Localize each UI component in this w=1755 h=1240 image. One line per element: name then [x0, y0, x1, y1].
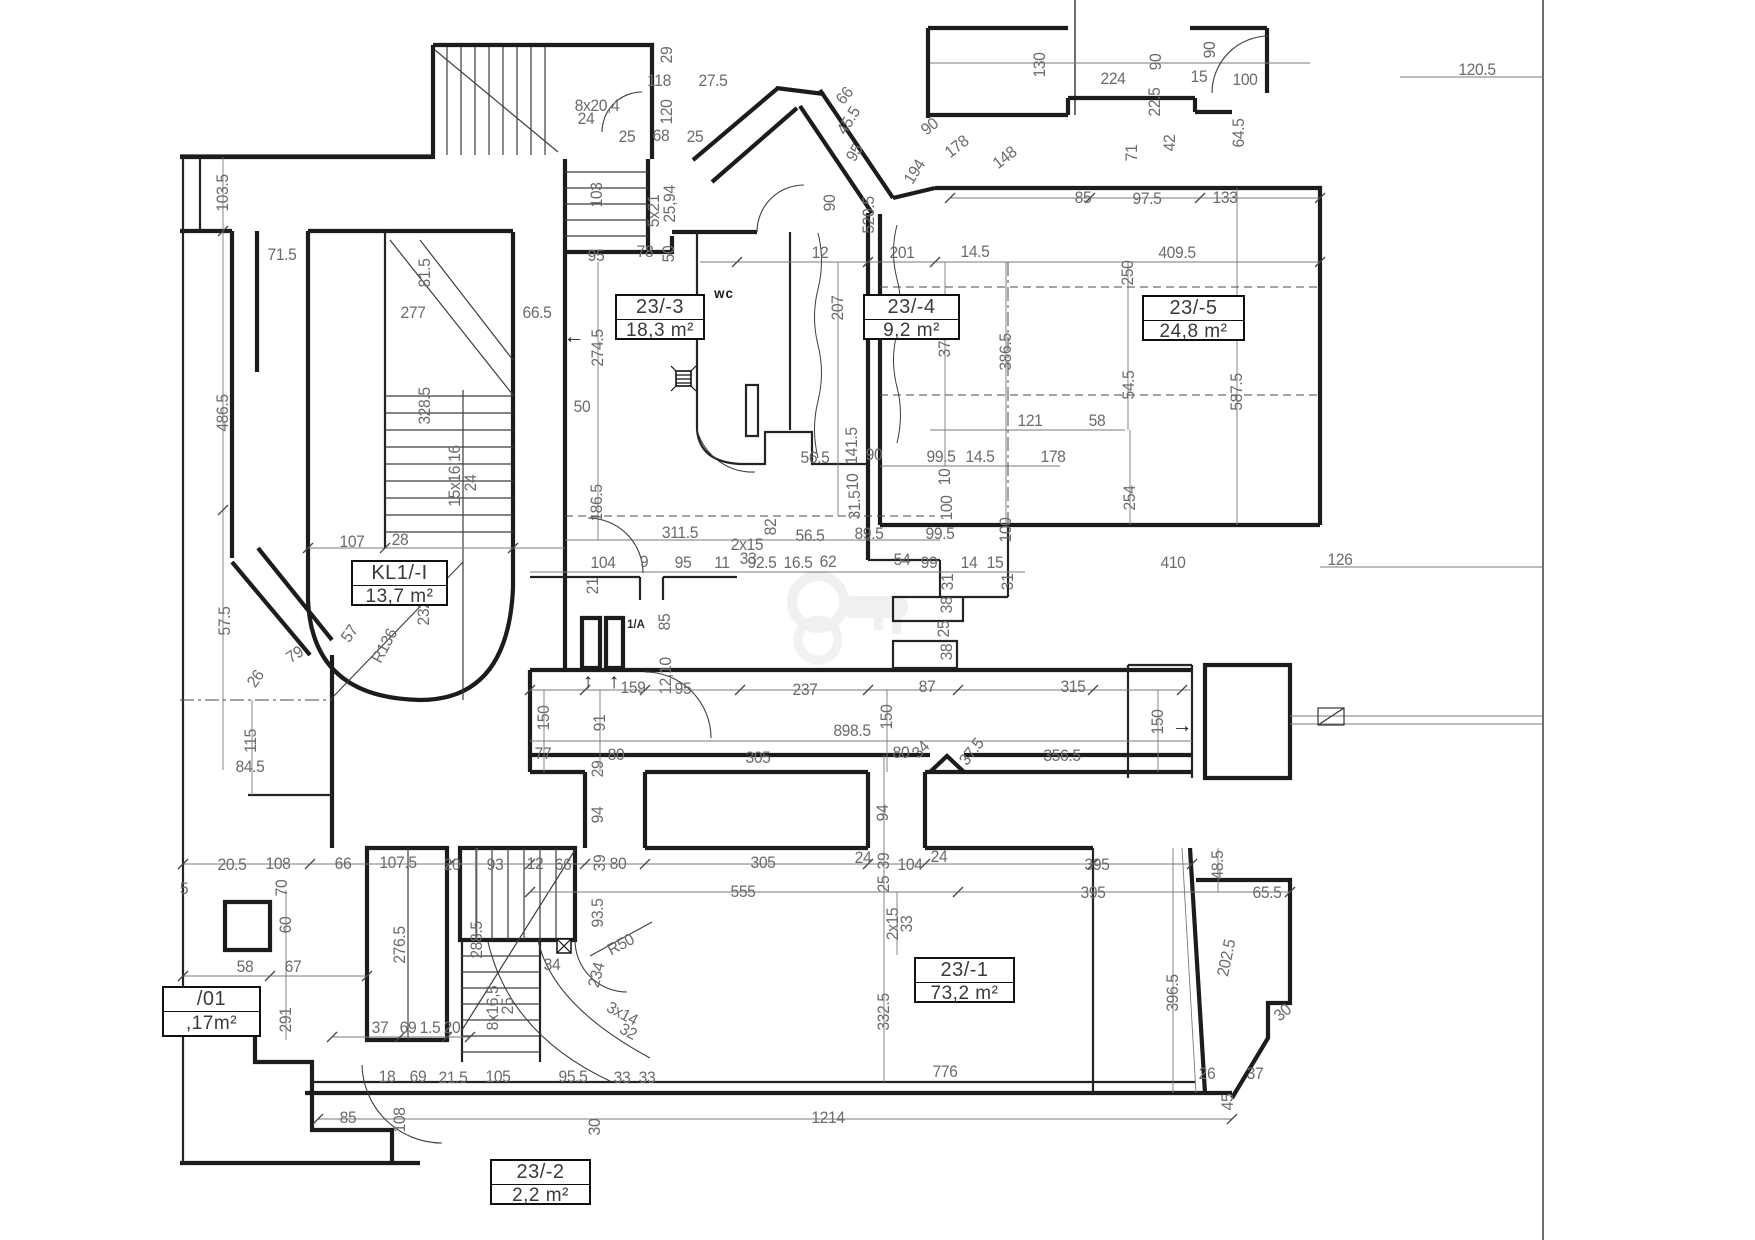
dimension-label: 20.5 — [218, 857, 247, 874]
dimension-label: 54.5 — [1121, 371, 1138, 400]
dimension-label: 39 — [876, 853, 893, 870]
dimension-label: 31 — [940, 574, 957, 591]
dimension-label: 108 — [392, 1107, 409, 1132]
dimension-label: 42 — [1162, 135, 1179, 152]
dimension-label: 95 — [675, 681, 692, 698]
dimension-label: 305 — [750, 855, 775, 872]
dimension-label: 194 — [901, 157, 928, 187]
dimension-label: 95 — [588, 248, 605, 265]
room-area: 18,3 m² — [617, 320, 703, 342]
up-arrow: ↑ — [609, 670, 620, 694]
dimension-label: 305 — [745, 750, 770, 767]
dimension-label: 90 — [822, 195, 839, 212]
dimension-label: 50 — [661, 246, 678, 263]
room-id: 23/-3 — [617, 296, 703, 320]
dimension-label: 92.5 — [748, 555, 777, 572]
room-id: 23/-2 — [492, 1161, 589, 1185]
dimension-label: 291 — [278, 1007, 295, 1032]
room-label: 23/-49,2 m² — [863, 294, 960, 340]
dimension-label: 54 — [894, 552, 911, 569]
dimension-label: 30 — [587, 1119, 604, 1136]
dimension-label: 104 — [590, 555, 615, 572]
dimension-label: 64.5 — [1231, 119, 1248, 148]
dimension-label: 80 — [610, 856, 627, 873]
dimension-label: 1214 — [811, 1110, 844, 1127]
dimension-label: 95.5 — [559, 1069, 588, 1086]
dimension-label: 103.5 — [215, 174, 232, 211]
dimension-label: 78 — [637, 244, 654, 261]
dimension-label: R136 — [369, 626, 400, 666]
dimension-label: 104 — [897, 857, 922, 874]
dimension-label: 100 — [998, 517, 1015, 542]
dimension-label: 65.5 — [1253, 885, 1282, 902]
dimension-label: 90 — [866, 447, 883, 464]
dimension-label: 58 — [237, 959, 254, 976]
dimension-label: 45 — [1220, 1094, 1237, 1111]
dimension-label: 18 — [379, 1069, 396, 1086]
dimension-label: 1/A — [627, 618, 645, 630]
dimension-label: 33 — [899, 916, 916, 933]
dimension-label: 68 — [653, 128, 670, 145]
dimension-label: 56.5 — [801, 450, 830, 467]
room-label: 23/-22,2 m² — [490, 1159, 591, 1205]
dimension-label: 66 — [335, 856, 352, 873]
dimension-label: 21.5 — [439, 1070, 468, 1087]
dimension-label: 90 — [1202, 42, 1219, 59]
dimension-label: 25 — [936, 621, 953, 638]
dimension-label: 37 — [1247, 1066, 1264, 1083]
dimension-label: R50 — [605, 931, 637, 959]
dimension-label: 93 — [487, 857, 504, 874]
dimension-label: 24 — [578, 111, 595, 128]
dimension-label: 315 — [1060, 679, 1085, 696]
room-area: 9,2 m² — [865, 320, 958, 342]
dimension-label: 66 — [555, 857, 572, 874]
dimension-label: 27.5 — [699, 73, 728, 90]
dimension-label: 105 — [485, 1069, 510, 1086]
dimension-label: 30 — [1271, 1001, 1294, 1024]
dimension-label: 93.5 — [590, 899, 607, 928]
annotation-layer: 103.571.581.5277486.5328.515x16,16241072… — [0, 0, 1755, 1240]
dimension-label: 97.5 — [1133, 191, 1162, 208]
dimension-label: 130 — [1032, 52, 1049, 77]
dimension-label: 1.5 — [420, 1020, 441, 1037]
dimension-label: 224 — [1100, 71, 1125, 88]
dimension-label: 186.5 — [589, 484, 606, 521]
dimension-label: 90 — [1148, 54, 1165, 71]
dimension-label: 12 — [527, 856, 544, 873]
dimension-label: 79 — [284, 644, 307, 667]
up-arrow: ↑ — [583, 670, 594, 694]
dimension-label: 25 — [876, 876, 893, 893]
dimension-label: 250 — [1120, 260, 1137, 285]
dimension-label: 108 — [265, 856, 290, 873]
dimension-label: 33 — [639, 1070, 656, 1087]
dimension-label: 56.5 — [796, 528, 825, 545]
dimension-label: 20 — [444, 857, 461, 874]
dimension-label: 25 — [619, 129, 636, 146]
dimension-label: 100 — [939, 495, 956, 520]
dimension-label: 28 — [392, 532, 409, 549]
dimension-label: 20 — [444, 1020, 461, 1037]
dimension-label: 14.5 — [961, 244, 990, 261]
dimension-label: 10 — [845, 474, 862, 491]
room-label: 23/-524,8 m² — [1142, 295, 1245, 341]
dimension-label: 67 — [285, 959, 302, 976]
dimension-label: 31 — [1000, 574, 1017, 591]
room-id: KL1/-I — [353, 562, 446, 586]
dimension-label: 555 — [730, 884, 755, 901]
dimension-label: 57 — [338, 622, 361, 645]
left-arrow: ← — [564, 325, 585, 349]
dimension-label: 95 — [675, 555, 692, 572]
dimension-label: 80 — [608, 747, 625, 764]
dimension-label: 207 — [830, 295, 847, 320]
dimension-label: 90 — [918, 115, 941, 138]
dimension-label: 328.5 — [417, 387, 434, 424]
dimension-label: 100 — [1232, 72, 1257, 89]
dimension-label: 31.5 — [847, 491, 864, 520]
dimension-label: 34 — [544, 957, 561, 974]
dimension-label: 37.5 — [957, 735, 988, 768]
dimension-label: 120 — [659, 99, 676, 124]
dimension-label: 85 — [1075, 190, 1092, 207]
dimension-label: 126 — [1327, 552, 1352, 569]
dimension-label: 12 — [812, 245, 829, 262]
dimension-label: 311.5 — [662, 525, 698, 542]
dimension-label: 332.5 — [876, 993, 893, 1030]
dimension-label: 115 — [243, 729, 260, 753]
dimension-label: 34 — [909, 738, 932, 761]
dimension-label: 85 — [657, 614, 674, 631]
dimension-label: 14.5 — [966, 449, 995, 466]
room-label: KL1/-I13,7 m² — [351, 560, 448, 606]
dimension-label: 87 — [919, 679, 936, 696]
dimension-label: 37 — [372, 1020, 389, 1037]
dimension-label: 38 — [939, 644, 956, 661]
dimension-label: 71 — [1124, 145, 1141, 162]
dimension-label: 276.5 — [392, 926, 409, 963]
dimension-label: 77 — [535, 746, 552, 763]
dimension-label: 178 — [1040, 449, 1065, 466]
dimension-label: 70 — [274, 880, 291, 897]
dimension-label: 50 — [574, 399, 591, 416]
dimension-label: 24 — [855, 850, 872, 867]
room-label: /01,17m² — [162, 986, 261, 1037]
room-area: ,17m² — [164, 1012, 259, 1035]
dimension-label: 29 — [659, 47, 676, 64]
dimension-label: 82 — [763, 519, 780, 536]
dimension-label: 410 — [1160, 555, 1185, 572]
dimension-label: 202.5 — [1215, 938, 1239, 978]
dimension-label: 24 — [931, 849, 948, 866]
dimension-label: 234 — [586, 961, 608, 989]
dimension-label: 69 — [400, 1020, 417, 1037]
dimension-label: 107 — [339, 534, 364, 551]
dimension-label: 80 — [893, 745, 910, 762]
dimension-label: 58 — [1089, 413, 1106, 430]
room-id: 23/-4 — [865, 296, 958, 320]
dimension-label: 103 — [589, 182, 606, 207]
dimension-label: 15 — [1191, 69, 1208, 86]
dimension-label: 26 — [244, 667, 267, 690]
dimension-label: 48.5 — [1210, 851, 1227, 880]
dimension-label: 150 — [1150, 709, 1167, 734]
room-id: 23/-1 — [916, 959, 1013, 983]
room-area: 13,7 m² — [353, 586, 446, 608]
dimension-label: 32 — [617, 1021, 639, 1043]
dimension-label: 94 — [875, 805, 892, 822]
dimension-label: 26 — [1199, 1066, 1216, 1083]
dimension-label: 159 — [620, 680, 645, 697]
floor-plan-canvas: 103.571.581.5277486.5328.515x16,16241072… — [0, 0, 1755, 1240]
dimension-label: 85 — [340, 1110, 357, 1127]
dimension-label: 776 — [932, 1064, 957, 1081]
dimension-label: wc — [714, 286, 734, 300]
dimension-label: 62 — [820, 554, 837, 571]
room-area: 73,2 m² — [916, 983, 1013, 1005]
dimension-label: 520.5 — [861, 196, 878, 233]
dimension-label: 84.5 — [236, 759, 265, 776]
dimension-label: 356.5 — [1043, 748, 1080, 765]
dimension-label: 69 — [410, 1069, 427, 1086]
dimension-label: 12,10 — [658, 657, 675, 694]
dimension-label: 94 — [590, 807, 607, 824]
dimension-label: 254 — [1122, 485, 1139, 510]
dimension-label: 121 — [1017, 413, 1042, 430]
dimension-label: 39 — [592, 855, 609, 872]
room-area: 2,2 m² — [492, 1185, 589, 1207]
room-label: 23/-173,2 m² — [914, 957, 1015, 1003]
dimension-label: 107.5 — [379, 855, 416, 872]
dimension-label: 15 — [987, 555, 1004, 572]
dimension-label: 24 — [463, 475, 480, 492]
dimension-label: 25 — [500, 998, 517, 1015]
dimension-label: 396.5 — [1165, 974, 1182, 1011]
dimension-label: 66.5 — [523, 305, 552, 322]
dimension-label: 25 — [687, 129, 704, 146]
dimension-label: 409.5 — [1158, 245, 1195, 262]
dimension-label: 395 — [1080, 885, 1105, 902]
dimension-label: 395 — [1084, 857, 1109, 874]
dimension-label: 66 — [833, 84, 856, 107]
dimension-label: 274.5 — [590, 329, 607, 366]
dimension-label: 91 — [592, 715, 609, 732]
dimension-label: 148 — [990, 144, 1020, 172]
dimension-label: 21 — [585, 578, 602, 595]
dimension-label: 9 — [640, 554, 648, 571]
dimension-label: 141.5 — [844, 427, 861, 464]
room-id: /01 — [164, 988, 259, 1012]
dimension-label: 237 — [792, 682, 817, 699]
dimension-label: 38 — [939, 597, 956, 614]
room-area: 24,8 m² — [1144, 321, 1243, 343]
dimension-label: 898.5 — [833, 723, 870, 740]
dimension-label: 120.5 — [1458, 62, 1495, 79]
dimension-label: 45.5 — [834, 104, 863, 137]
dimension-label: 71.5 — [268, 247, 297, 264]
dimension-label: 587.5 — [1229, 373, 1246, 410]
dimension-label: 201 — [889, 245, 914, 262]
dimension-label: 150 — [536, 705, 553, 730]
dimension-label: 22.5 — [1147, 88, 1164, 117]
dimension-label: 178 — [942, 133, 972, 161]
dimension-label: 89.5 — [855, 526, 884, 543]
dimension-label: 11 — [714, 555, 730, 572]
dimension-label: 10 — [937, 469, 954, 486]
dimension-label: 57.5 — [217, 607, 234, 636]
dimension-label: 5 — [180, 881, 188, 898]
room-id: 23/-5 — [1144, 297, 1243, 321]
dimension-label: 386.5 — [998, 333, 1015, 370]
dimension-label: 486.5 — [215, 394, 232, 431]
dimension-label: 99.5 — [926, 526, 955, 543]
dimension-label: 288.5 — [469, 921, 486, 958]
room-label: 23/-318,3 m² — [615, 294, 705, 340]
dimension-label: 99.5 — [927, 449, 956, 466]
dimension-label: 81.5 — [417, 259, 434, 288]
dimension-label: 25,94 — [662, 185, 679, 222]
dimension-label: 95 — [844, 142, 867, 165]
dimension-label: 150 — [879, 704, 896, 729]
dimension-label: 99 — [921, 555, 938, 572]
dimension-label: 277 — [400, 305, 425, 322]
dimension-label: 118 — [647, 73, 671, 90]
dimension-label: 60 — [278, 917, 295, 934]
dimension-label: 133 — [1212, 190, 1237, 207]
dimension-label: 14 — [961, 555, 978, 572]
dimension-label: 16.5 — [784, 555, 813, 572]
dimension-label: 29 — [590, 761, 607, 778]
dimension-label: 33 — [614, 1070, 631, 1087]
right-arrow: → — [1172, 714, 1193, 738]
